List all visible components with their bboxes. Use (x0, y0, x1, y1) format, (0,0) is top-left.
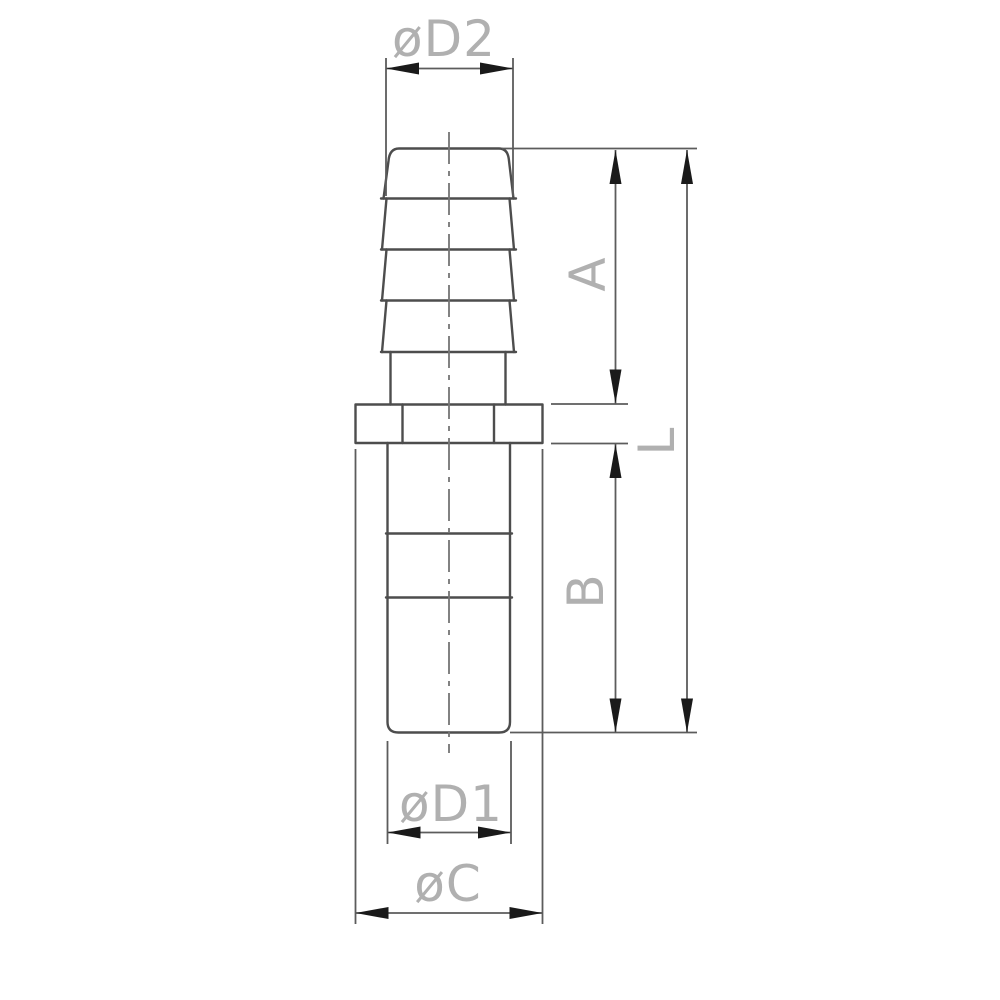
dimension-arrow-down (610, 699, 622, 733)
barb-ridge-outline (382, 301, 514, 353)
dimension-arrow-down (681, 699, 693, 733)
dimension-arrow-right (510, 907, 543, 919)
neck-outline (391, 352, 506, 405)
barb-ridge-outline (382, 250, 514, 301)
dimension-label-d2: øD2 (392, 10, 496, 68)
dimension-label-a: A (559, 256, 617, 291)
dimension-label-c: øC (414, 855, 482, 913)
dimension-label-l: L (628, 427, 686, 456)
drawing-canvas: øD2 A B L øD1 (0, 0, 1000, 1000)
dimension-l: L (628, 150, 693, 733)
dimension-label-b: B (557, 573, 615, 608)
dimension-arrow-up (681, 150, 693, 184)
dimension-arrow-left (356, 907, 389, 919)
barb-ridge-outline (382, 199, 514, 250)
dimension-d2: øD2 (386, 10, 513, 196)
dimension-d1: øD1 (388, 741, 512, 844)
dimension-label-d1: øD1 (399, 775, 503, 833)
dimension-b: B (557, 444, 622, 733)
dimension-arrow-up (610, 150, 622, 184)
technical-drawing: øD2 A B L øD1 (0, 0, 1000, 1000)
body-outline (388, 443, 511, 733)
dimension-arrow-up (610, 444, 622, 478)
dimension-arrow-down (610, 370, 622, 404)
dimension-a: A (559, 150, 622, 404)
